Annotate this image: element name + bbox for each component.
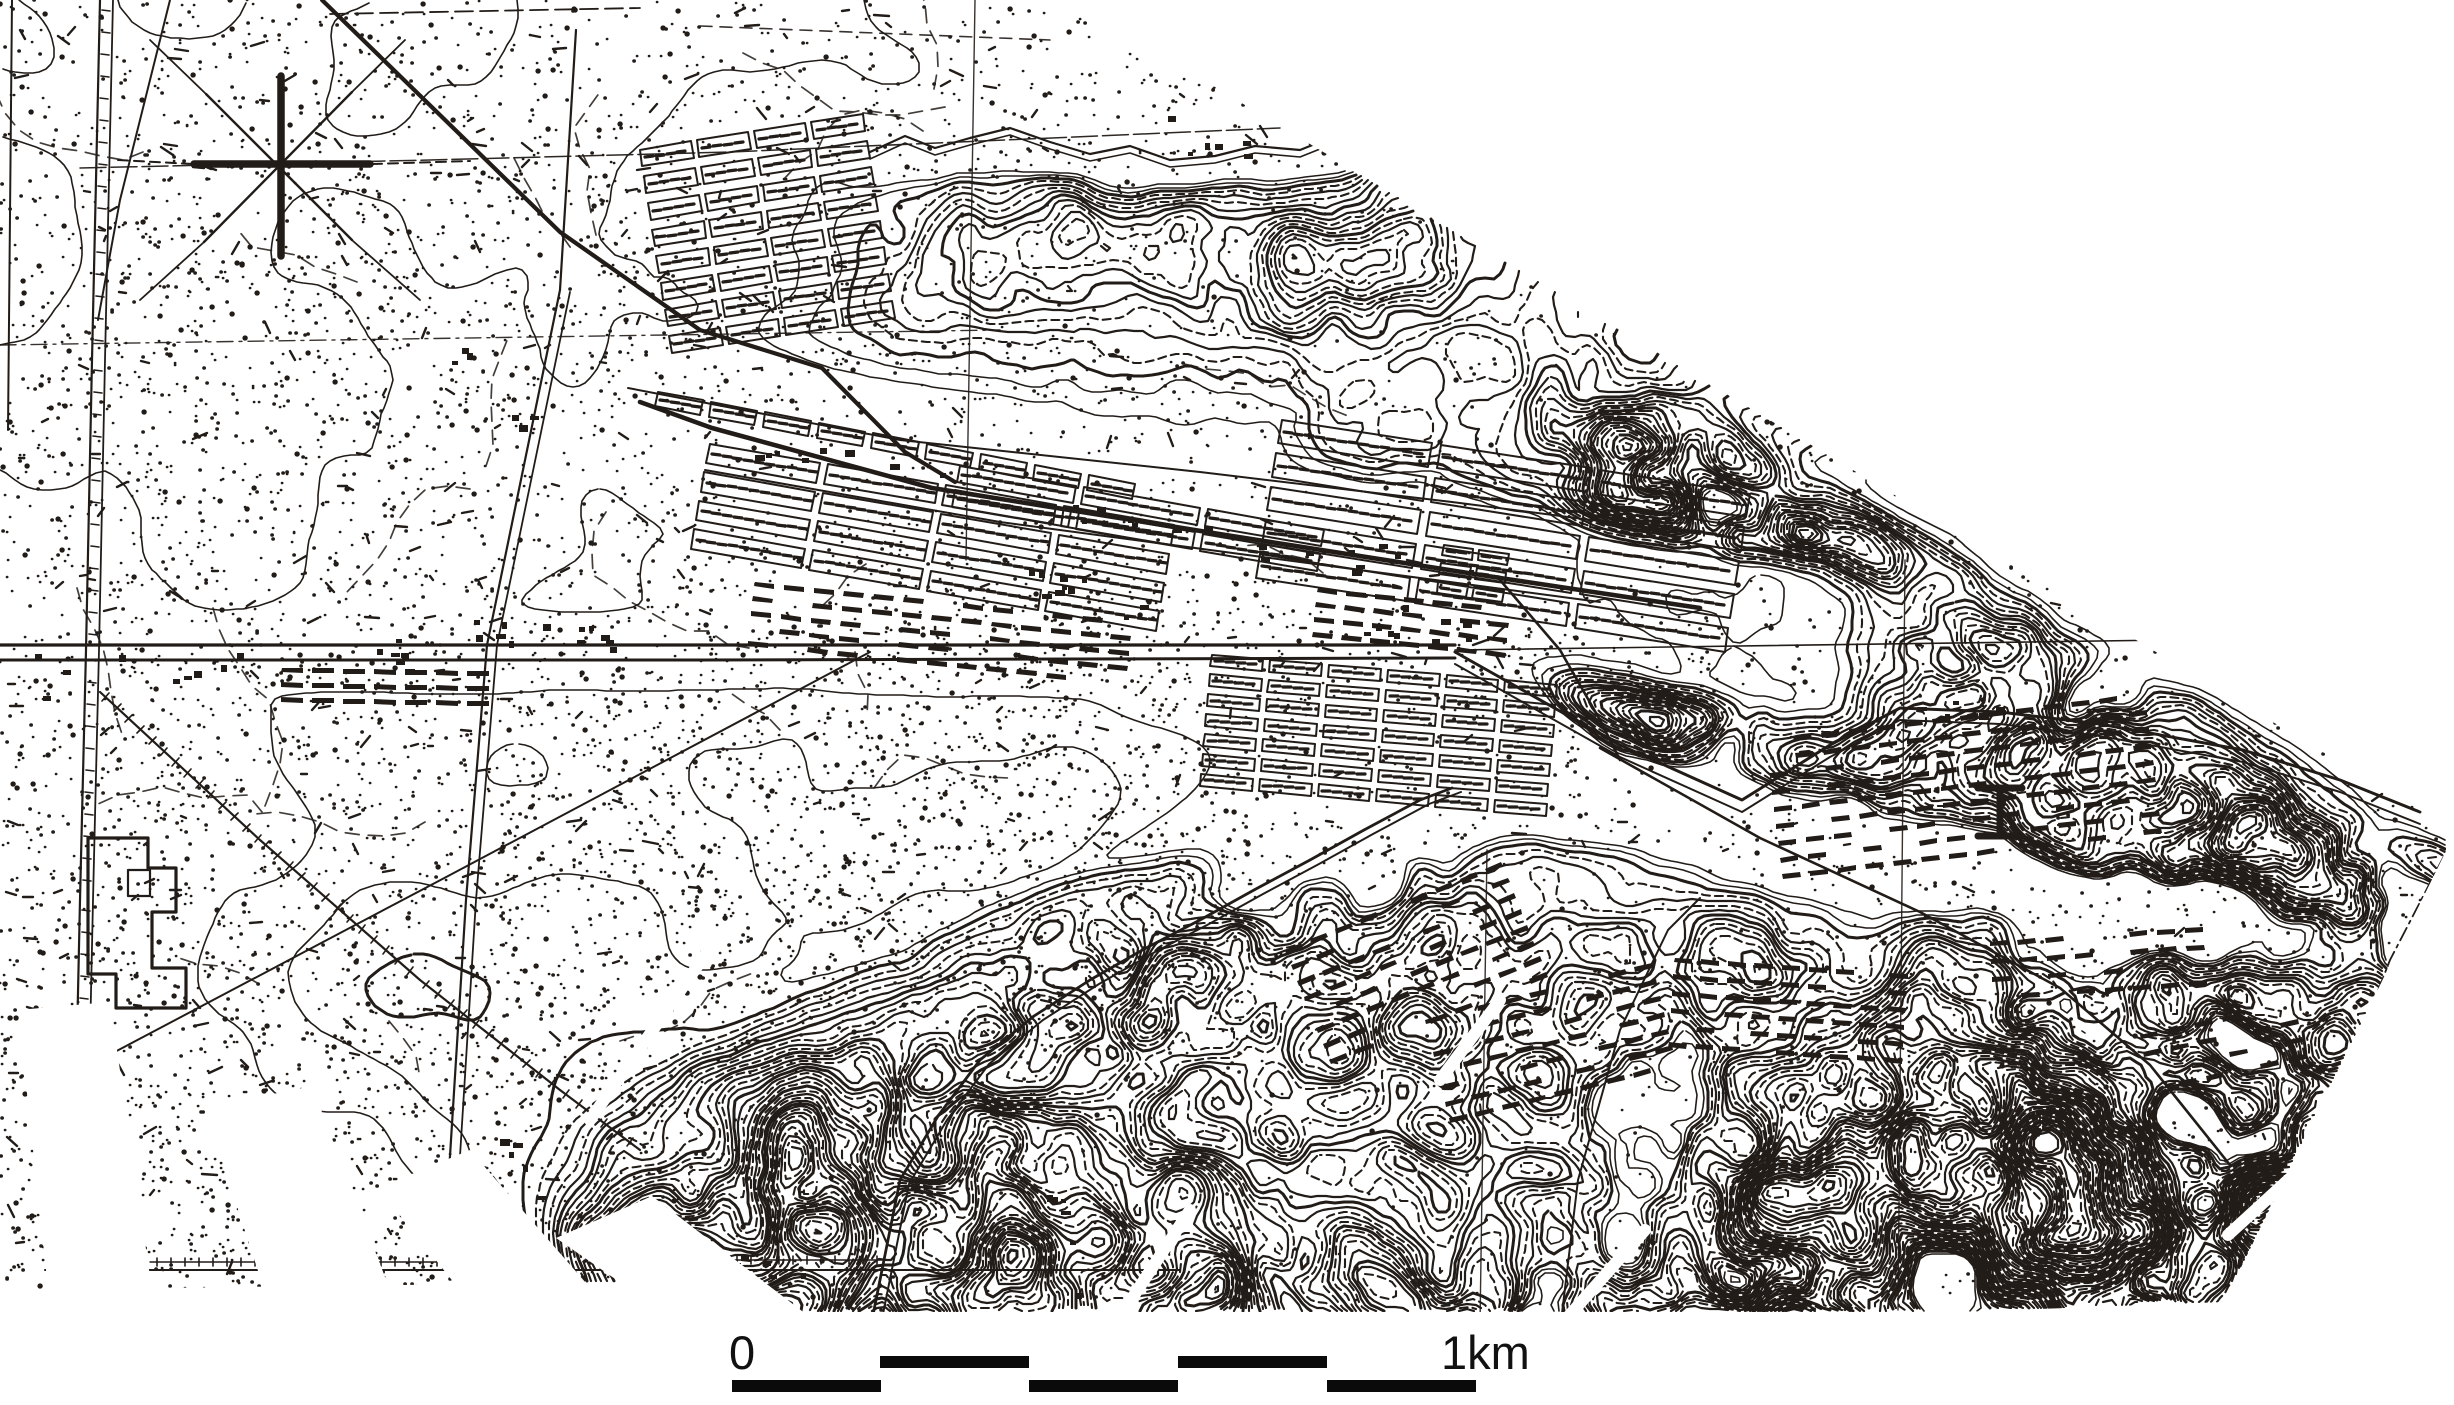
svg-text:1km: 1km [1441, 1326, 1530, 1379]
svg-text:0: 0 [729, 1326, 755, 1379]
